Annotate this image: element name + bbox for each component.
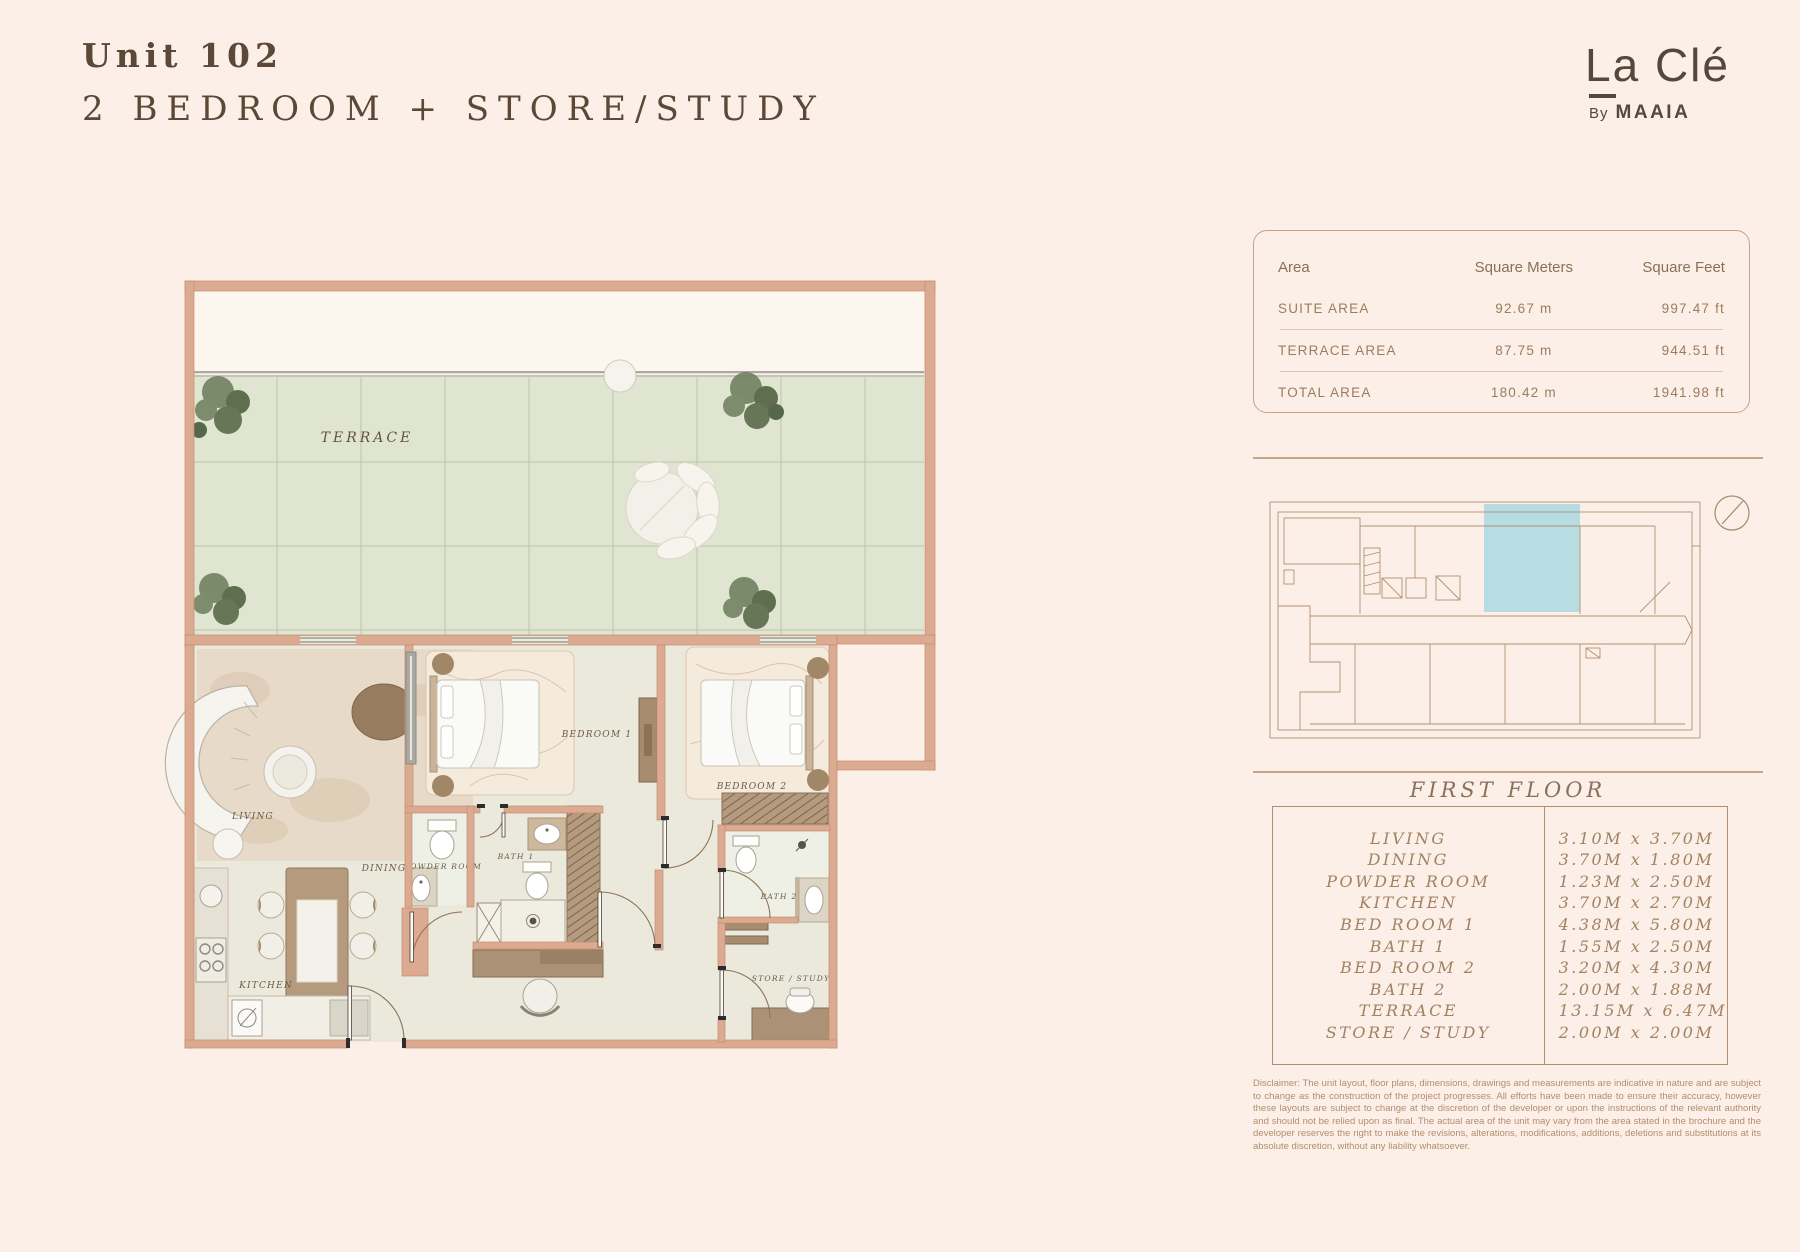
room-dim: 3.10M x 3.70M: [1559, 828, 1727, 850]
store-label: STORE / STUDY: [752, 974, 831, 983]
room-name: STORE / STUDY: [1326, 1022, 1491, 1044]
dining-label: DINING: [361, 864, 406, 874]
area-table: Area Square Meters Square Feet SUITE ARE…: [1253, 230, 1750, 413]
first-floor-heading: FIRST FLOOR: [1253, 778, 1763, 802]
toilet: [526, 873, 548, 899]
divider-line: [1253, 457, 1763, 459]
unit-type: 2 BEDROOM + STORE/STUDY: [82, 89, 825, 129]
room-name: TERRACE: [1359, 1000, 1458, 1022]
disclaimer-text: Disclaimer: The unit layout, floor plans…: [1253, 1078, 1761, 1153]
table-row: SUITE AREA 92.67 m 997.47 ft: [1278, 288, 1725, 329]
col-area: Area: [1278, 259, 1457, 276]
side-table: [213, 829, 243, 859]
brand-name: La Clé: [1585, 42, 1753, 88]
highlighted-unit: [1484, 504, 1580, 612]
divider-line: [1253, 771, 1763, 773]
room-name: POWDER ROOM: [1326, 871, 1490, 893]
living-label: LIVING: [231, 812, 274, 822]
basin: [412, 875, 430, 901]
toilet: [430, 831, 454, 859]
brand-logo: La Clé By MAAIA: [1585, 42, 1753, 124]
desk: [752, 1008, 829, 1040]
col-sqm: Square Meters: [1457, 259, 1591, 276]
room-dim: 4.38M x 5.80M: [1559, 914, 1727, 936]
room-dim: 3.70M x 2.70M: [1559, 892, 1727, 914]
brochure-page: { "header": { "title_line1": "Unit 102",…: [0, 0, 1800, 1252]
floor-plan: TERRACE: [160, 255, 960, 1065]
basin: [534, 824, 560, 844]
room-name: BATH 2: [1370, 979, 1447, 1001]
room-name: DINING: [1368, 849, 1449, 871]
room-dims-column: 3.10M x 3.70M 3.70M x 1.80M 1.23M x 2.50…: [1545, 807, 1727, 1064]
room-dim: 3.70M x 1.80M: [1559, 849, 1727, 871]
bath1-label: BATH 1: [497, 852, 535, 861]
room-dim: 1.23M x 2.50M: [1559, 871, 1727, 893]
bedroom-2: BEDROOM 2: [686, 647, 829, 824]
col-sqft: Square Feet: [1591, 259, 1725, 276]
room-dim: 1.55M x 2.50M: [1559, 936, 1727, 958]
room-dim: 3.20M x 4.30M: [1559, 957, 1727, 979]
room-name: BED ROOM 1: [1340, 914, 1476, 936]
basin: [805, 886, 823, 914]
key-plan: [1240, 486, 1760, 758]
kitchen-sink: [200, 885, 222, 907]
nightstand: [432, 775, 454, 797]
bedroom1-label: BEDROOM 1: [561, 730, 633, 740]
area-table-header: Area Square Meters Square Feet: [1278, 247, 1725, 288]
logo-underline: [1589, 94, 1616, 98]
room-name: BATH 1: [1370, 936, 1447, 958]
wardrobe: [567, 806, 600, 946]
dimensions-table: LIVING DINING POWDER ROOM KITCHEN BED RO…: [1272, 806, 1728, 1065]
room-name: LIVING: [1370, 828, 1447, 850]
nightstand: [807, 769, 829, 791]
bath-2: BATH 2: [725, 831, 829, 922]
unit-number: Unit 102: [82, 36, 825, 75]
terrace-zone: TERRACE: [191, 291, 924, 637]
toilet: [736, 847, 756, 873]
terrace-label: TERRACE: [321, 430, 414, 446]
room-names-column: LIVING DINING POWDER ROOM KITCHEN BED RO…: [1273, 807, 1545, 1064]
room-dim: 2.00M x 2.00M: [1559, 1022, 1727, 1044]
wardrobe: [722, 793, 828, 824]
room-name: KITCHEN: [1359, 892, 1457, 914]
compass-icon: [1715, 496, 1749, 530]
nightstand: [807, 657, 829, 679]
table-row: TOTAL AREA 180.42 m 1941.98 ft: [1278, 372, 1725, 413]
room-dim: 13.15M x 6.47M: [1559, 1000, 1727, 1022]
logo-by: By: [1589, 105, 1609, 122]
bedroom2-label: BEDROOM 2: [716, 782, 788, 792]
logo-company: MAAIA: [1616, 102, 1691, 124]
kitchen-label: KITCHEN: [238, 981, 293, 991]
table-row: TERRACE AREA 87.75 m 944.51 ft: [1278, 330, 1725, 371]
room-name: BED ROOM 2: [1340, 957, 1476, 979]
nightstand: [432, 653, 454, 675]
page-title: Unit 102 2 BEDROOM + STORE/STUDY: [82, 36, 825, 129]
room-dim: 2.00M x 1.88M: [1559, 979, 1727, 1001]
chair: [523, 979, 557, 1013]
